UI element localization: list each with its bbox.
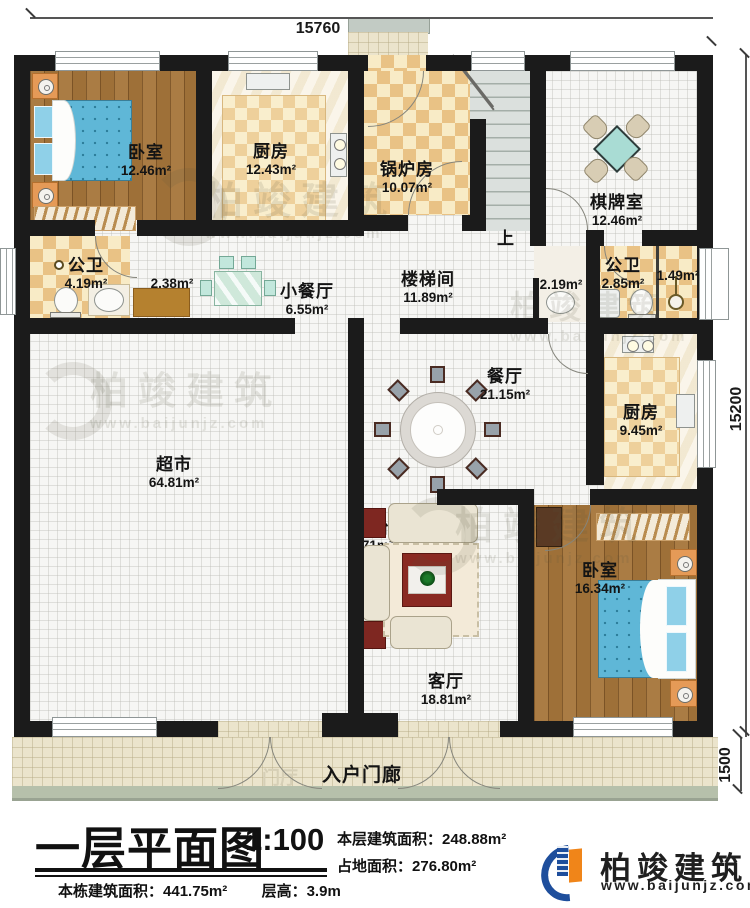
chair [430, 366, 445, 383]
window-market-bottom [52, 717, 157, 737]
room-name: 小餐厅 [280, 277, 334, 302]
room-name: 锅炉房 [380, 155, 434, 180]
dimension-line-porch [740, 737, 742, 791]
dimension-right: 15200 [728, 377, 746, 441]
brand-logo-icon [540, 840, 594, 894]
room-name: 楼梯间 [401, 265, 455, 290]
room-label-market: 超市 64.81m² [149, 450, 199, 490]
wall-market-right [348, 318, 364, 737]
room-label-shower: 1.49m² [657, 268, 700, 283]
room-label-washarea: 2.19m² [540, 277, 583, 292]
toilet [54, 287, 78, 314]
brand-site: www.baijunjz.com [601, 877, 750, 893]
total-area-line: 本栋建筑面积：441.75m² 层高：3.9m [58, 880, 341, 901]
title-underline-2 [35, 875, 327, 877]
room-area: 9.45m² [620, 423, 663, 438]
wall-chess-left [530, 71, 546, 246]
wall-chess-bottom-a [586, 230, 604, 246]
footprint-label: 占地面积： [337, 858, 412, 875]
rug [596, 513, 690, 541]
room-name: 公卫 [602, 251, 645, 276]
room-area: 21.15m² [480, 387, 530, 402]
pillow [666, 586, 687, 626]
room-area: 64.81m² [149, 475, 199, 490]
chair [264, 280, 276, 296]
bed-sheet [640, 580, 662, 678]
dimension-line-top [30, 17, 713, 19]
kitchen-sink [246, 73, 290, 90]
room-name: 餐厅 [480, 362, 530, 387]
chair [200, 280, 212, 296]
floor-plan-sheet: 15760 15200 1500 [0, 0, 750, 908]
shower-head-icon [668, 294, 684, 310]
lamp-icon [38, 79, 54, 95]
loveseat [390, 616, 452, 649]
nightstand [32, 182, 58, 208]
wall-boiler-bottom-a [364, 215, 408, 231]
room-name: 客厅 [421, 667, 471, 692]
bed-sheet [52, 100, 76, 181]
room-label-boiler: 锅炉房 10.07m² [380, 155, 434, 195]
room-name: 公卫 [65, 251, 108, 276]
floor-area-value: 248.88m² [442, 831, 506, 848]
room-label-chess: 棋牌室 12.46m² [590, 188, 644, 228]
window-bath1-left [0, 248, 16, 315]
room-area: 10.07m² [380, 180, 434, 195]
porch-edge-band [12, 786, 718, 798]
plant-icon [420, 571, 435, 586]
dimension-tick [706, 36, 717, 47]
room-name: 棋牌室 [590, 188, 644, 213]
room-label-kitchen2: 厨房 9.45m² [620, 398, 663, 438]
room-label-bedroom2: 卧室 16.34m² [575, 556, 625, 596]
room-area: 2.19m² [540, 277, 583, 292]
room-label-dining: 餐厅 21.15m² [480, 362, 530, 402]
nightstand [670, 549, 697, 576]
door-opening-market [218, 721, 322, 737]
burner-icon [334, 158, 346, 170]
room-name: 超市 [149, 450, 199, 475]
floor-area-line: 本层建筑面积：248.88m² [337, 828, 506, 849]
wall-chess-bottom-b [642, 230, 697, 246]
height-label: 层高： [262, 883, 307, 900]
porch-label: 入户门廊 [322, 760, 402, 787]
room-area: 16.34m² [575, 581, 625, 596]
total-area-label: 本栋建筑面积： [58, 883, 163, 900]
closet-cabinet [133, 288, 190, 317]
dinette-table [214, 271, 262, 306]
pillow [34, 143, 53, 175]
stairs-up-label: 上 [497, 224, 515, 249]
room-label-dinette: 小餐厅 6.55m² [280, 277, 334, 317]
wall-dining-kitchen2 [586, 334, 604, 485]
room-label-bath1: 公卫 4.19m² [65, 251, 108, 291]
room-area: 4.19m² [65, 276, 108, 291]
window-kitchen1-top [228, 51, 318, 71]
room-label-bath2: 公卫 2.85m² [602, 251, 645, 291]
wall-bath2-left [586, 246, 600, 322]
wall-bedroom2-top [590, 489, 697, 505]
chair [484, 422, 501, 437]
door-opening-living [398, 721, 500, 737]
burner-icon [627, 340, 639, 352]
room-area: 6.55m² [280, 302, 334, 317]
chair [374, 422, 391, 437]
wall-kitchen1-boiler [348, 55, 364, 236]
lamp-icon [38, 188, 54, 204]
wall-boiler-stairs [470, 119, 486, 231]
wall-washarea-left [533, 278, 539, 322]
dimension-tick [732, 729, 743, 740]
sink [94, 288, 124, 312]
pillow [34, 106, 53, 138]
room-area: 2.85m² [602, 276, 645, 291]
stove [330, 133, 347, 177]
chair [241, 256, 256, 269]
logo-building-blue [557, 846, 568, 876]
logo-building-orange [569, 848, 582, 882]
kitchen-sink [676, 394, 695, 428]
room-area: 12.46m² [121, 163, 171, 178]
sofa [388, 503, 478, 543]
room-name: 厨房 [620, 398, 663, 423]
wall-bedroom1-kitchen1 [196, 71, 212, 228]
porch-edge-line [12, 798, 718, 801]
room-label-stairhall: 楼梯间 11.89m² [401, 265, 455, 305]
total-area-value: 441.75m² [163, 883, 227, 900]
sheet-scale: 1:100 [245, 822, 324, 858]
wall-living-top [437, 489, 534, 505]
dining-table-center [433, 425, 443, 435]
window-stairs-top [471, 51, 525, 71]
nightstand [670, 680, 697, 707]
toilet [630, 289, 653, 316]
wall-market-top [30, 318, 295, 334]
dimension-top: 15760 [283, 20, 353, 38]
wall-kitchen2-top [586, 318, 697, 334]
room-label-living: 客厅 18.81m² [421, 667, 471, 707]
room-area: 1.49m² [657, 268, 700, 283]
wall-living-bedroom2 [518, 505, 534, 721]
room-label-bedroom1: 卧室 12.46m² [121, 138, 171, 178]
height-value: 3.9m [307, 883, 341, 900]
window-shower-right [699, 248, 729, 320]
lamp-icon [677, 687, 693, 703]
room-area: 18.81m² [421, 692, 471, 707]
room-label-kitchen1: 厨房 12.43m² [246, 137, 296, 177]
wall-hall-dining [400, 318, 548, 334]
wall-boiler-bottom-b [462, 215, 470, 231]
wall-bottom-door-pier [322, 713, 398, 737]
room-name: 入户门廊 [322, 760, 402, 787]
chair [219, 256, 234, 269]
room-area: 11.89m² [401, 290, 455, 305]
room-name: 厨房 [246, 137, 296, 162]
wall-outer-left [14, 55, 30, 737]
room-area: 12.43m² [246, 162, 296, 177]
dimension-porch: 1500 [717, 739, 735, 791]
footprint-line: 占地面积：276.80m² [337, 855, 476, 876]
floor-area-label: 本层建筑面积： [337, 831, 442, 848]
room-area: 2.38m² [151, 276, 194, 291]
wall-mid-h1a [30, 220, 95, 236]
pillow [666, 632, 687, 672]
burner-icon [334, 139, 346, 151]
sink [546, 291, 575, 314]
room-name: 卧室 [121, 138, 171, 163]
up-text: 上 [497, 224, 515, 249]
window-bedroom2-bottom [573, 717, 673, 737]
stove [622, 336, 654, 353]
burner-icon [642, 340, 654, 352]
title-underline [35, 868, 327, 872]
nightstand [32, 73, 58, 99]
wall-mid-h1b [137, 220, 348, 236]
window-bedroom1-top [55, 51, 160, 71]
door-opening-boiler-top [368, 55, 426, 71]
room-name: 卧室 [575, 556, 625, 581]
light-fixture-icon [54, 260, 64, 270]
footprint-value: 276.80m² [412, 858, 476, 875]
sofa-chaise [362, 545, 390, 621]
window-chess-top [570, 51, 675, 71]
room-area: 12.46m² [590, 213, 644, 228]
entry-landing [348, 32, 428, 55]
window-kitchen2-right [697, 360, 716, 468]
room-label-closet: 2.38m² [151, 276, 194, 291]
lamp-icon [677, 556, 693, 572]
